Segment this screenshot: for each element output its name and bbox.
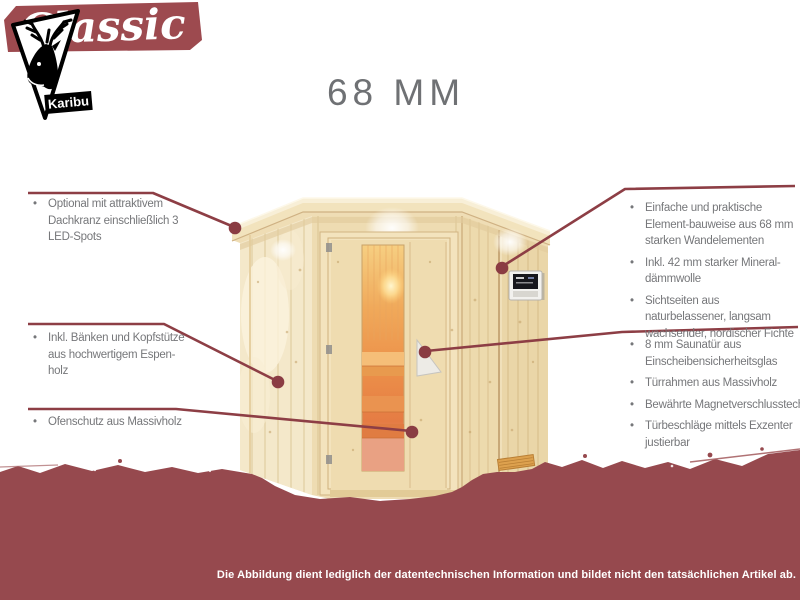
callout-list-right-top: • Einfache und praktische Element-bauwei… [630,200,800,347]
bullet: • [630,397,634,414]
dot-ofenschutz [406,426,419,439]
callout-item: • Sichtseiten aus naturbelassener, langs… [630,293,800,343]
callout-item: • Inkl. Bänken und Kopfstütze aus hochwe… [33,330,185,380]
callout-item: • Ofenschutz aus Massivholz [33,414,228,431]
callout-item: • Türbeschläge mittels Exzenter justierb… [630,418,800,451]
disclaimer-text: Die Abbildung dient lediglich der datent… [217,569,796,581]
callout-item: • Einfache und praktische Element-bauwei… [630,200,800,250]
bullet: • [630,200,634,217]
bullet: • [630,293,634,310]
callout-item: • Türrahmen aus Massivholz [630,375,800,392]
bullet: • [33,196,37,213]
bullet: • [630,255,634,272]
bullet: • [630,337,634,354]
callout-list-right-bottom: • 8 mm Saunatür aus Einscheibensicherhei… [630,337,800,456]
page-header: 68 MM [0,72,800,114]
model-size-title: 68 MM [327,72,465,114]
dot-dachkranz [229,222,242,235]
brochure-page: 68 MM Classic • Optional mit attraktivem… [0,0,800,600]
bullet: • [630,375,634,392]
callout-item: • 8 mm Saunatür aus Einscheibensicherhei… [630,337,800,370]
callout-item: • Bewährte Magnetverschlusstechnik [630,397,800,414]
callout-list-left-middle: • Inkl. Bänken und Kopfstütze aus hochwe… [33,330,185,385]
dot-saunatuer [419,346,432,359]
callout-item: • Optional mit attraktivem Dachkranz ein… [33,196,183,246]
callout-list-left-bottom: • Ofenschutz aus Massivholz [33,414,228,436]
dot-baenke [272,376,285,389]
bullet: • [33,330,37,347]
callout-list-left-top: • Optional mit attraktivem Dachkranz ein… [33,196,183,251]
karibu-logo: Karibu [0,0,120,136]
bullet: • [33,414,37,431]
dot-elementbauweise [496,262,509,275]
callout-item: • Inkl. 42 mm starker Mineral-dämmwolle [630,255,800,288]
bullet: • [630,418,634,435]
